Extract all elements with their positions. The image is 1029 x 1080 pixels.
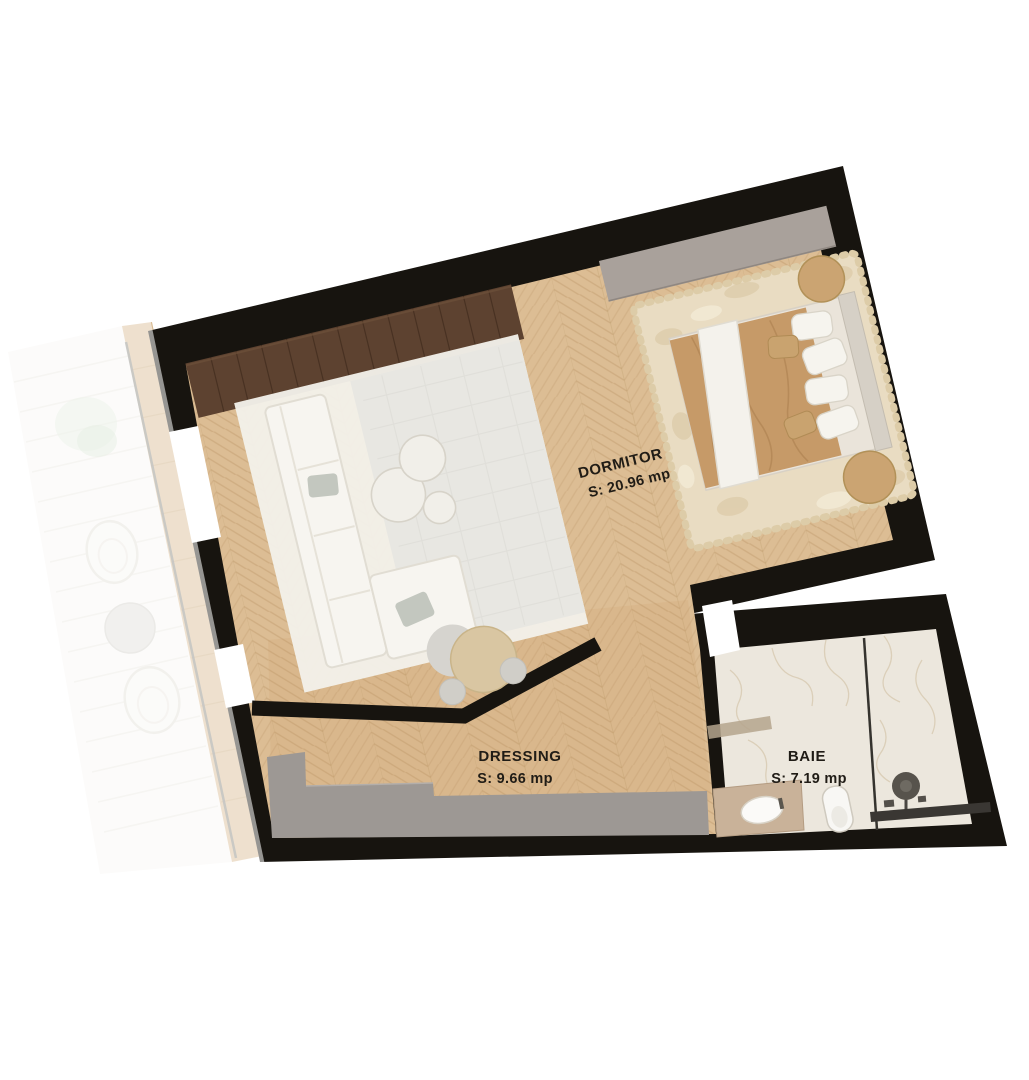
sofa-pillow <box>307 473 339 498</box>
room-area: S: 7.19 mp <box>771 771 847 787</box>
room-name: BAIE <box>788 748 826 765</box>
room-name: DRESSING <box>478 748 561 765</box>
floor-plan-canvas: DORMITOR S: 20.96 mp DRESSING S: 9.66 mp… <box>0 0 1029 1080</box>
floor-plan: DORMITOR S: 20.96 mp DRESSING S: 9.66 mp… <box>0 0 1029 1080</box>
room-area: S: 9.66 mp <box>477 771 553 787</box>
